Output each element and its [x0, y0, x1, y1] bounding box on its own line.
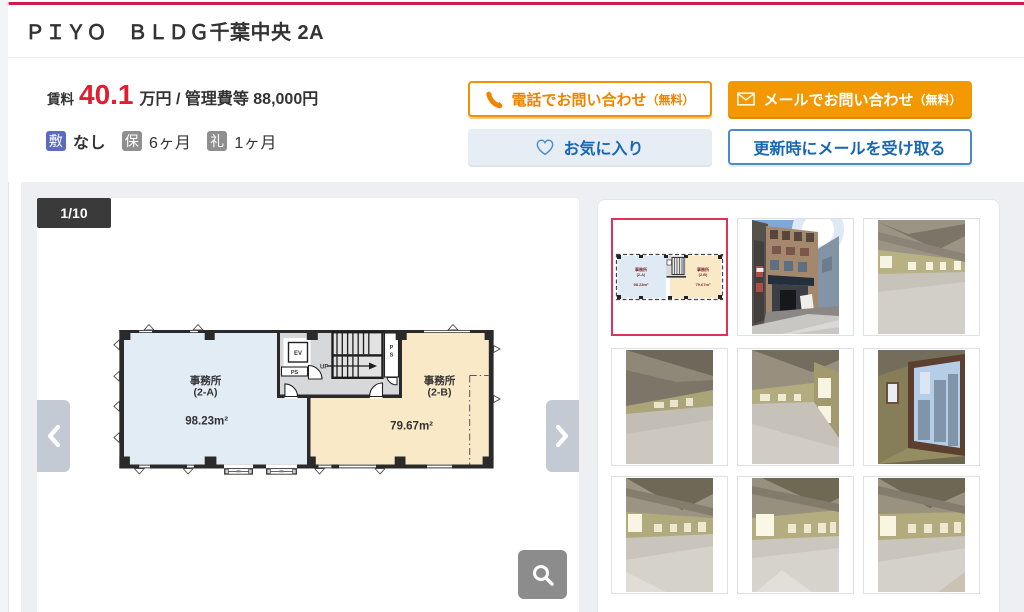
svg-text:EV: EV	[294, 351, 302, 357]
svg-text:UP: UP	[320, 365, 328, 371]
svg-text:事務所: 事務所	[190, 374, 222, 387]
svg-text:事務所: 事務所	[635, 266, 647, 272]
svg-text:PS: PS	[291, 370, 299, 376]
svg-text:79.67m²: 79.67m²	[696, 282, 712, 287]
svg-text:98.23m²: 98.23m²	[185, 416, 228, 428]
svg-text:(2-B): (2-B)	[699, 273, 708, 277]
svg-text:事務所: 事務所	[697, 266, 709, 272]
svg-text:P: P	[390, 345, 394, 351]
svg-text:98.23m²: 98.23m²	[634, 282, 650, 287]
svg-text:(2-A): (2-A)	[637, 273, 646, 277]
svg-text:(2-B): (2-B)	[428, 387, 452, 399]
svg-text:S: S	[390, 353, 394, 359]
svg-text:(2-A): (2-A)	[194, 387, 218, 399]
svg-text:79.67m²: 79.67m²	[390, 421, 433, 433]
svg-text:事務所: 事務所	[424, 374, 456, 387]
